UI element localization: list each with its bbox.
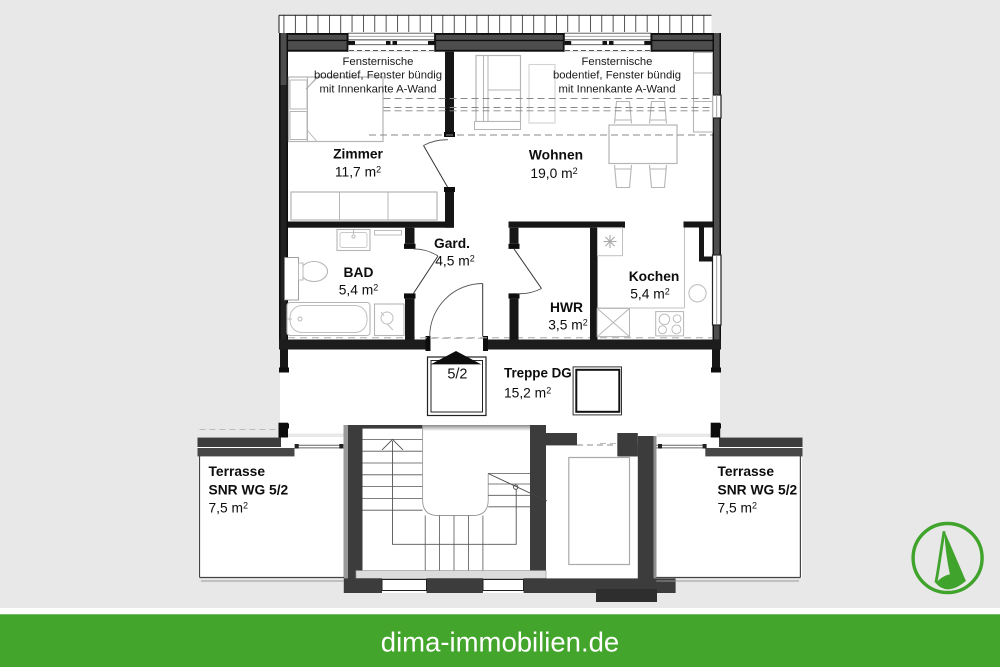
svg-text:dima-immobilien.de: dima-immobilien.de xyxy=(381,627,619,658)
svg-text:Terrasse: Terrasse xyxy=(718,464,775,479)
svg-text:15,2 m2: 15,2 m2 xyxy=(504,386,551,401)
svg-text:Fensternische: Fensternische xyxy=(582,56,653,68)
svg-text:Zimmer: Zimmer xyxy=(333,147,383,162)
svg-text:7,5 m2: 7,5 m2 xyxy=(718,501,758,516)
svg-text:11,7 m2: 11,7 m2 xyxy=(335,165,381,180)
svg-text:Treppe DG: Treppe DG xyxy=(504,366,572,381)
svg-text:mit Innenkante A-Wand: mit Innenkante A-Wand xyxy=(558,83,675,95)
svg-text:mit Innenkante A-Wand: mit Innenkante A-Wand xyxy=(319,83,436,95)
svg-text:7,5 m2: 7,5 m2 xyxy=(209,501,249,516)
svg-text:SNR WG 5/2: SNR WG 5/2 xyxy=(718,483,798,498)
svg-text:Wohnen: Wohnen xyxy=(529,148,583,163)
svg-text:Gard.: Gard. xyxy=(434,236,470,251)
svg-text:bodentief, Fenster bündig: bodentief, Fenster bündig xyxy=(314,70,442,82)
svg-text:19,0 m2: 19,0 m2 xyxy=(530,166,577,181)
svg-text:Terrasse: Terrasse xyxy=(209,464,266,479)
svg-text:5,4 m2: 5,4 m2 xyxy=(339,283,379,298)
svg-text:3,5 m2: 3,5 m2 xyxy=(548,318,588,333)
svg-text:bodentief, Fenster bündig: bodentief, Fenster bündig xyxy=(553,70,681,82)
svg-text:5/2: 5/2 xyxy=(447,366,467,382)
svg-text:BAD: BAD xyxy=(344,265,374,280)
svg-text:Fensternische: Fensternische xyxy=(343,56,414,68)
svg-text:5,4 m2: 5,4 m2 xyxy=(630,287,670,302)
svg-text:4,5 m2: 4,5 m2 xyxy=(435,254,475,269)
svg-text:SNR WG 5/2: SNR WG 5/2 xyxy=(209,483,289,498)
svg-text:HWR: HWR xyxy=(550,300,583,315)
svg-text:Kochen: Kochen xyxy=(629,269,680,284)
